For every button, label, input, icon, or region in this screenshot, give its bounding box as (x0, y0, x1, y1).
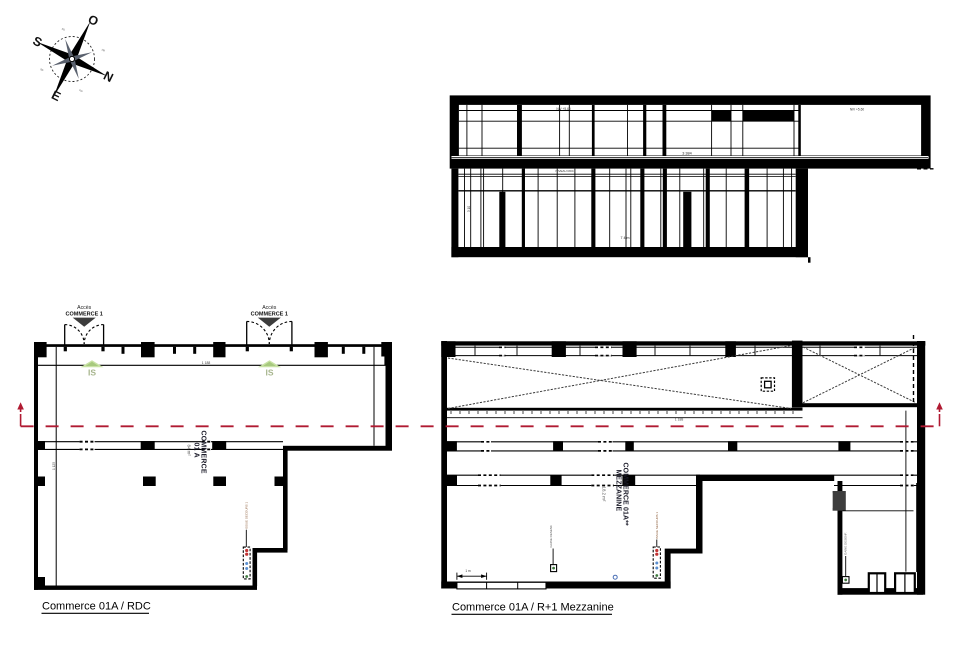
svg-text:IS: IS (88, 368, 96, 378)
svg-text:1 188: 1 188 (675, 417, 684, 421)
svg-text:01 A: 01 A (193, 443, 200, 458)
svg-text:COMMERCE 1: COMMERCE 1 (66, 311, 103, 317)
svg-text:GAINE DESENF.: GAINE DESENF. (844, 532, 848, 555)
svg-text:COMMERCE: COMMERCE (200, 431, 207, 474)
svg-text:18.2 m²: 18.2 m² (602, 487, 607, 502)
svg-text:1 m: 1 m (465, 569, 471, 573)
svg-text:84 m²: 84 m² (187, 445, 192, 457)
svg-text:NIV +5.60: NIV +5.60 (850, 108, 864, 112)
svg-text:COMMERCE 1: COMMERCE 1 (251, 311, 288, 317)
svg-text:NIVEAU RDC: NIVEAU RDC (555, 169, 574, 173)
svg-text:MEZZANINE: MEZZANINE (615, 470, 622, 512)
svg-text:ISSUE SECOURS 1: ISSUE SECOURS 1 (655, 511, 659, 539)
svg-text:1 125: 1 125 (52, 462, 56, 470)
svg-text:NIV +5.60: NIV +5.60 (556, 107, 570, 111)
svg-text:Accès: Accès (262, 305, 277, 311)
svg-text:Accès: Accès (77, 305, 92, 311)
svg-text:1 188: 1 188 (202, 361, 211, 365)
svg-text:COMMERCE 01A**: COMMERCE 01A** (622, 463, 629, 526)
svg-text:Commerce 01A / RDC: Commerce 01A / RDC (42, 601, 151, 613)
svg-text:Commerce 01A / R+1 Mezzanine: Commerce 01A / R+1 Mezzanine (452, 602, 614, 614)
svg-text:3 384: 3 384 (682, 152, 692, 156)
svg-text:3 10: 3 10 (467, 206, 471, 212)
svg-text:ISSUE SECOURS 1: ISSUE SECOURS 1 (245, 501, 249, 529)
svg-text:IS: IS (265, 368, 273, 378)
svg-text:7 4 m: 7 4 m (621, 236, 630, 240)
svg-text:GAINE DESENF.: GAINE DESENF. (549, 524, 553, 547)
